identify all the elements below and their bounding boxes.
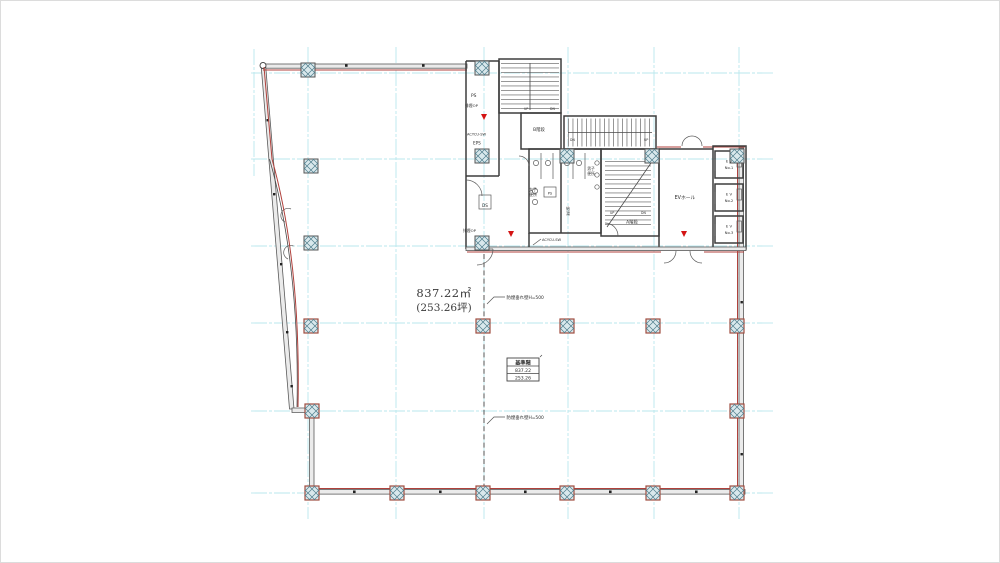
- dn-label: DN: [570, 138, 575, 142]
- smoke-vent-label: 排煙OP: [465, 103, 479, 108]
- up-label: UP: [524, 107, 528, 111]
- exterior-walls: [260, 63, 745, 495]
- ac-switch-label: ACYCU-SW: [542, 238, 562, 242]
- up-label: UP: [610, 211, 614, 215]
- floor-plan-canvas: 基準階 837.22 253.26 837.22㎡ (253.26坪) 防煙垂れ…: [0, 0, 1000, 563]
- stamp-header: 基準階: [514, 359, 531, 367]
- ev2-label: No.2: [725, 198, 734, 203]
- stamp-row1: 837.22: [515, 368, 531, 374]
- mens-toilet-label: 便所: [587, 171, 595, 176]
- floor-plan-drawing: 基準階 837.22 253.26 837.22㎡ (253.26坪) 防煙垂れ…: [1, 1, 1000, 563]
- ac-switch-label: ACYCU-SW: [467, 133, 487, 137]
- grid-layer: [251, 47, 773, 519]
- evac-triangle-icon: [508, 231, 514, 237]
- dn-label: DN: [550, 107, 555, 111]
- ev-hall-label: EVホール: [675, 195, 696, 201]
- area-m2-label: 837.22㎡: [416, 286, 471, 300]
- smoke-barrier-annotation: 防煙垂れ壁H=500: [507, 414, 545, 421]
- up-label: UP: [644, 138, 648, 142]
- columns-layer: [301, 61, 744, 500]
- eps-label: EPS: [473, 141, 481, 146]
- stair-a-label: A階段: [626, 219, 638, 226]
- smoke-vent-label: 排煙OP: [463, 228, 477, 233]
- stair-a: [607, 161, 651, 227]
- kyuto-label: 湯: [566, 211, 570, 216]
- evac-triangle-icon: [681, 231, 687, 237]
- accent-lines: [263, 67, 745, 489]
- core-walls: [466, 59, 746, 251]
- evac-triangle-icon: [481, 114, 487, 120]
- stair-b-label: B階段: [533, 126, 545, 133]
- stamp-row2: 253.26: [515, 376, 531, 382]
- area-stamp-table: 基準階 837.22 253.26: [507, 355, 542, 382]
- area-tsubo-label: (253.26坪): [416, 301, 471, 314]
- ev1-label: E V: [726, 159, 733, 164]
- ps-label: PS: [471, 93, 477, 99]
- ev2-label: E V: [726, 192, 733, 197]
- ev3-label: E V: [726, 224, 733, 229]
- labels-layer: 837.22㎡ (253.26坪) 防煙垂れ壁H=500 防煙垂れ壁H=500 …: [416, 93, 734, 421]
- ev3-label: No.3: [725, 230, 734, 235]
- toilet-fixtures: [479, 153, 599, 209]
- womens-toilet-label: 便所: [529, 192, 537, 197]
- smoke-barrier-annotation: 防煙垂れ壁H=500: [507, 294, 545, 301]
- ds-label: DS: [482, 203, 488, 208]
- annotation-leaders: [487, 239, 541, 424]
- ev1-label: No.1: [725, 165, 734, 170]
- ps-small-label: PS: [548, 192, 553, 196]
- dn-label: DN: [641, 211, 646, 215]
